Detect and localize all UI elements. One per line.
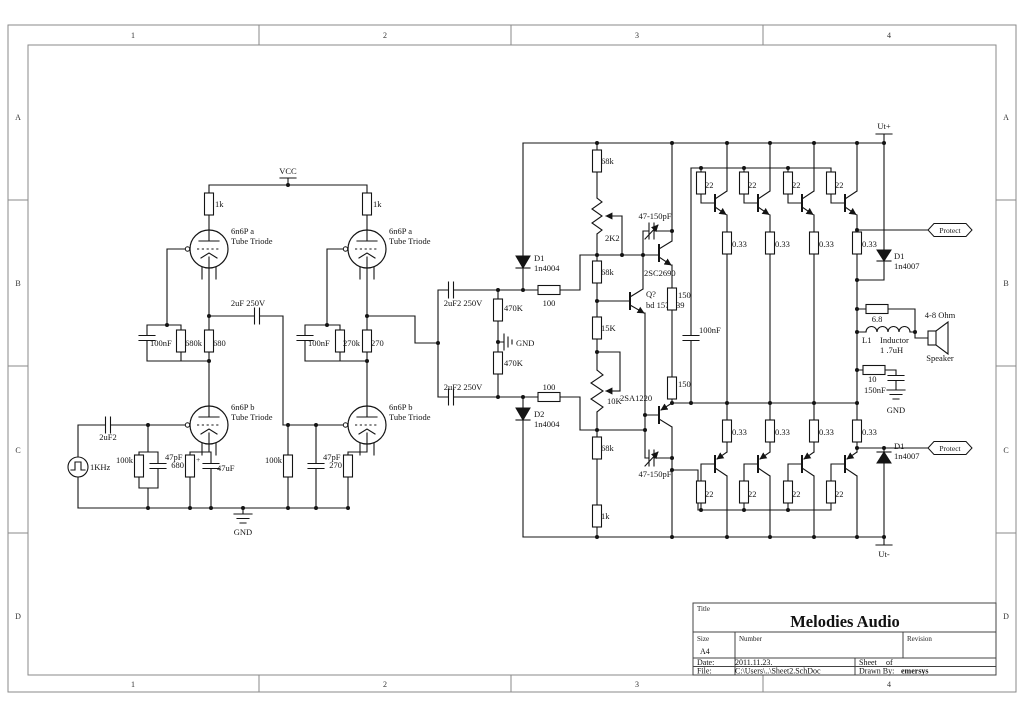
- zobel-r-label: 10: [868, 374, 877, 384]
- row-letter-D-left: D: [15, 612, 21, 621]
- zone-number-1-bottom: 1: [131, 680, 135, 689]
- output-stage: 22 22 22 22 22 22 22 22 0.33 0.33 0.33 0…: [523, 121, 972, 559]
- cath1-c-label: 47uF: [217, 463, 235, 473]
- clamp-top-ref: D1: [894, 251, 904, 261]
- file-value: C:\Users\..\Sheet2.SchDoc: [735, 667, 821, 676]
- zone-number-3-top: 3: [635, 31, 639, 40]
- diode-d2-icon: [516, 408, 530, 420]
- l1-ref: L1: [862, 335, 871, 345]
- coupling-cap1-label: 2uF 250V: [231, 298, 266, 308]
- tube-v3-type: Tube Triode: [231, 412, 273, 422]
- plate-resistor-left-label: 1k: [215, 199, 224, 209]
- grid1-r-label: 100k: [116, 455, 134, 465]
- gnd-label-left: GND: [234, 527, 252, 537]
- title-block-title: Melodies Audio: [790, 612, 900, 631]
- source-freq-label: 1KHz: [90, 462, 111, 472]
- tube-v3: [185, 406, 228, 455]
- re-label: 0.33: [775, 427, 790, 437]
- ladder-r68k-2-label: 68k: [601, 267, 615, 277]
- zone-number-1-top: 1: [131, 31, 135, 40]
- re-label: 0.33: [819, 239, 834, 249]
- zone-number-4-top: 4: [887, 31, 891, 40]
- series-r1-label: 100: [543, 298, 556, 308]
- rb-label: 22: [748, 180, 757, 190]
- l1-value: 1 .7uH: [880, 345, 903, 355]
- rb-label: 22: [748, 489, 757, 499]
- re-label: 0.33: [775, 239, 790, 249]
- d2-ref: D2: [534, 409, 544, 419]
- clamp-bot-ref: D1: [894, 441, 904, 451]
- pot-2k2-label: 2K2: [605, 233, 620, 243]
- net2-r1-label: 270k: [343, 338, 361, 348]
- schematic-canvas: 1 2 3 4 1 2 3 4 A B C D A B C D Title Me…: [0, 0, 1024, 723]
- row-letter-A-right: A: [1003, 113, 1009, 122]
- ladder-r1k-label: 1k: [601, 511, 610, 521]
- tube-v2-type: Tube Triode: [389, 236, 431, 246]
- r150-1-label: 150: [678, 290, 691, 300]
- clamp-bot-type: 1n4007: [894, 451, 920, 461]
- speaker-impedance: 4-8 Ohm: [925, 310, 956, 320]
- tube-v2-name: 6n6P a: [389, 226, 412, 236]
- divider-r2-label: 470K: [504, 358, 524, 368]
- q-bot-type: 2SA1220: [620, 393, 652, 403]
- net2-cap-label: 100nF: [308, 338, 330, 348]
- middle-coupler: 2uF2 250V 2uF2 250V 100 100 470K 470K GN…: [438, 143, 580, 537]
- re-label: 0.33: [862, 427, 877, 437]
- clamp-top-type: 1n4007: [894, 261, 920, 271]
- series-r2-label: 100: [543, 382, 556, 392]
- rb-label: 22: [835, 180, 844, 190]
- re-label: 0.33: [732, 427, 747, 437]
- row-letter-B-left: B: [15, 279, 20, 288]
- clamp-diode-top-icon: [877, 250, 891, 261]
- protect-bottom-label: Protect: [939, 444, 961, 453]
- input-cap-label: 2uF2: [99, 432, 116, 442]
- tube-v2: [343, 230, 386, 279]
- ut-minus-label: Ut-: [878, 549, 890, 559]
- net1-cap-label: 100nF: [150, 338, 172, 348]
- output-pnp-columns: [697, 452, 858, 537]
- net1-r1-label: 680k: [185, 338, 203, 348]
- zone-number-4-bottom: 4: [887, 680, 891, 689]
- rb-label: 22: [792, 180, 801, 190]
- ladder-r15k-label: 15K: [601, 323, 617, 333]
- speaker-icon: [928, 331, 936, 345]
- diode-d1-icon: [516, 256, 530, 268]
- row-letter-D-right: D: [1003, 612, 1009, 621]
- d1-type: 1n4004: [534, 263, 560, 273]
- row-letter-B-right: B: [1003, 279, 1008, 288]
- size-label: Size: [697, 635, 709, 643]
- rb-label: 22: [835, 489, 844, 499]
- net2-r2-label: 270: [371, 338, 384, 348]
- comp-cap1-label: 47-150pF: [638, 211, 671, 221]
- zobel-c-label: 150nF: [864, 385, 886, 395]
- re-label: 0.33: [732, 239, 747, 249]
- vas-cap-label: 100nF: [699, 325, 721, 335]
- vas-driver: 68k 68k 15K 68k 1k 2K2 10K Q? bd 157/139…: [580, 143, 721, 537]
- r150-2-label: 150: [678, 379, 691, 389]
- zone-number-3-bottom: 3: [635, 680, 639, 689]
- grid2-r-label: 100k: [265, 455, 283, 465]
- q-top-type: 2SC2690: [644, 268, 676, 278]
- tube-v1-type: Tube Triode: [231, 236, 273, 246]
- size-value: A4: [700, 647, 710, 656]
- clamp-diode-bottom-icon: [877, 452, 891, 463]
- drawn-by-label: Drawn By:: [859, 667, 894, 676]
- rb-label: 22: [792, 489, 801, 499]
- tube-v1-name: 6n6P a: [231, 226, 254, 236]
- d1-ref: D1: [534, 253, 544, 263]
- ladder-r68k-3-label: 68k: [601, 443, 615, 453]
- schematic-sheet: 1 2 3 4 1 2 3 4 A B C D A B C D Title Me…: [0, 0, 1024, 723]
- zone-number-2-top: 2: [383, 31, 387, 40]
- plate-resistor-right-label: 1k: [373, 199, 382, 209]
- rb-label: 22: [705, 180, 714, 190]
- tube-v1: [185, 230, 228, 279]
- coupler-cap2-label: 2uF2 250V: [444, 382, 483, 392]
- divider-r1-label: 470K: [504, 303, 524, 313]
- cath2-r-label: 270: [329, 460, 342, 470]
- tube-v3-name: 6n6P b: [231, 402, 255, 412]
- coupler-cap1-label: 2uF2 250V: [444, 298, 483, 308]
- tube-v4-type: Tube Triode: [389, 412, 431, 422]
- gnd-label-right: GND: [887, 405, 905, 415]
- zone-number-2-bottom: 2: [383, 680, 387, 689]
- ut-plus-label: Ut+: [877, 121, 891, 131]
- q-mid-ref: Q?: [646, 289, 656, 299]
- comp-cap2-label: 47-150pF: [638, 469, 671, 479]
- d2-type: 1n4004: [534, 419, 560, 429]
- row-letter-A-left: A: [15, 113, 21, 122]
- l1-name: Inductor: [880, 335, 909, 345]
- cath1-cap-plus: +: [196, 455, 200, 464]
- tube-v4-name: 6n6P b: [389, 402, 413, 412]
- file-label: File:: [697, 667, 712, 676]
- drawn-by-value: emersys: [901, 667, 929, 676]
- net1-r2-label: 680: [213, 338, 226, 348]
- inductor-icon: [866, 327, 910, 332]
- rb-label: 22: [705, 489, 714, 499]
- r68-label: 6.8: [872, 314, 883, 324]
- row-letter-C-left: C: [15, 446, 20, 455]
- number-label: Number: [739, 635, 763, 643]
- title-block: Title Melodies Audio Size A4 Number Revi…: [693, 603, 996, 676]
- vcc-label: VCC: [279, 166, 297, 176]
- re-label: 0.33: [819, 427, 834, 437]
- speaker-label: Speaker: [926, 353, 954, 363]
- protect-top-label: Protect: [939, 226, 961, 235]
- ladder-r68k-1-label: 68k: [601, 156, 615, 166]
- cath1-r-label: 680: [171, 460, 184, 470]
- gnd-label-mid: GND: [516, 338, 534, 348]
- q-mid-type: bd 157/139: [646, 300, 685, 310]
- tube-stages: VCC 1k 1k 6n6P a Tube Triode 6n6P a Tube…: [68, 166, 438, 537]
- re-label: 0.33: [862, 239, 877, 249]
- title-label: Title: [697, 605, 710, 613]
- tube-v4: [343, 406, 386, 455]
- revision-label: Revision: [907, 635, 932, 643]
- row-letter-C-right: C: [1003, 446, 1008, 455]
